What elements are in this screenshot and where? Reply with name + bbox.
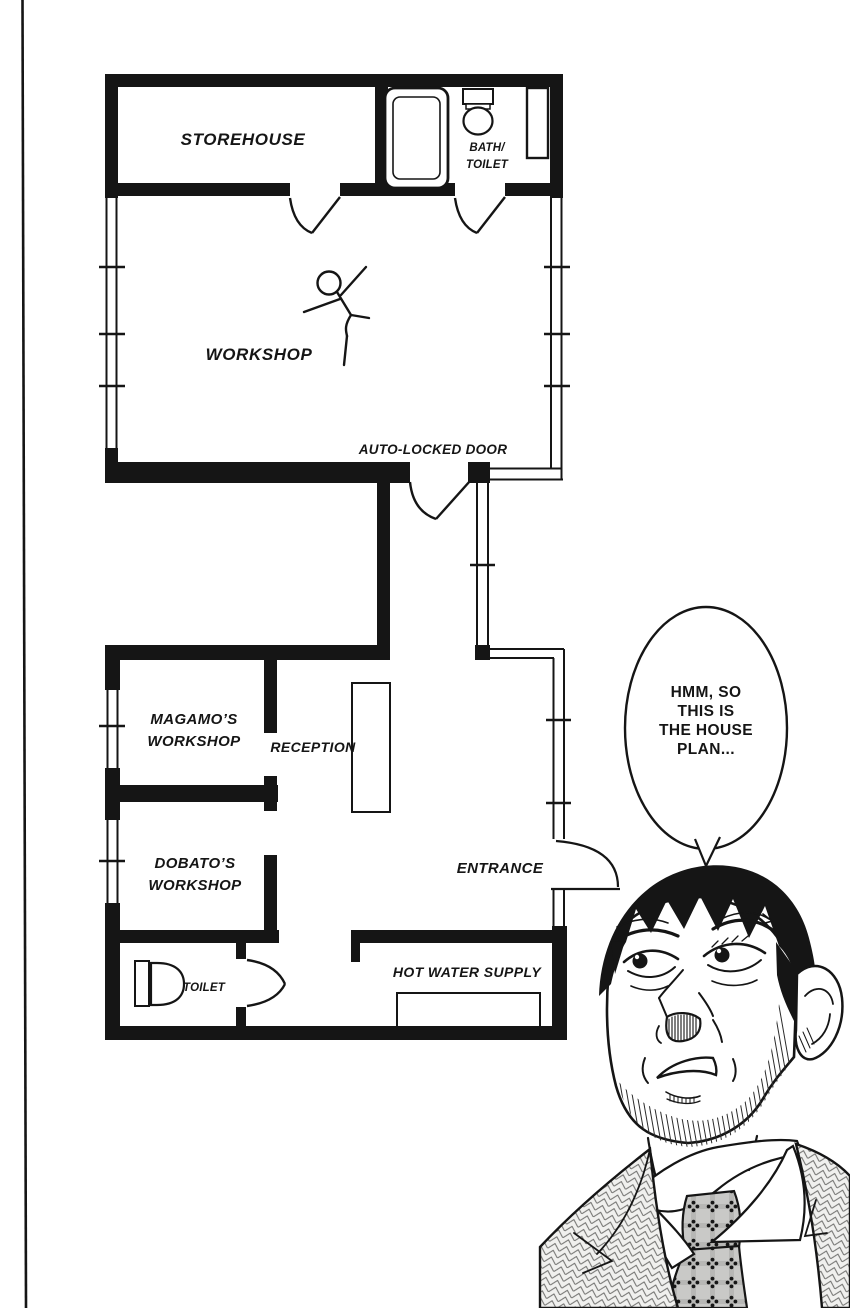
svg-text:THE HOUSE: THE HOUSE bbox=[659, 722, 753, 739]
lower-building: MAGAMO’S WORKSHOP RECEPTION DOBATO’S WOR… bbox=[99, 645, 620, 1040]
svg-text:THIS IS: THIS IS bbox=[677, 703, 734, 720]
manga-page: STOREHOUSE BATH/ TOILET WORKSHOP AUTO-LO… bbox=[0, 0, 850, 1308]
upper-building: STOREHOUSE BATH/ TOILET WORKSHOP AUTO-LO… bbox=[99, 74, 570, 483]
entrance-door-swing-icon bbox=[551, 841, 620, 889]
door-swing-icons bbox=[290, 197, 505, 233]
label-entrance: ENTRANCE bbox=[457, 860, 544, 877]
label-storehouse: STOREHOUSE bbox=[181, 130, 306, 149]
toilet-icon-upper bbox=[463, 89, 493, 135]
ear-icon bbox=[796, 966, 843, 1059]
floor-plan: STOREHOUSE BATH/ TOILET WORKSHOP AUTO-LO… bbox=[99, 74, 620, 1040]
auto-locked-door-swing-icon bbox=[410, 481, 470, 519]
label-bath-toilet-line1: BATH/ bbox=[469, 142, 506, 154]
character bbox=[540, 865, 850, 1308]
bathtub-icon bbox=[385, 88, 448, 188]
upper-walls bbox=[105, 74, 563, 483]
toilet-door-swing-icon bbox=[247, 960, 285, 1006]
label-bath-toilet-line2: TOILET bbox=[466, 159, 509, 171]
label-workshop: WORKSHOP bbox=[206, 345, 313, 364]
toilet-icon-lower bbox=[135, 961, 184, 1006]
label-magamo-workshop-line1: MAGAMO’S bbox=[150, 711, 237, 728]
window-ticks bbox=[99, 267, 570, 386]
label-auto-locked-door: AUTO-LOCKED DOOR bbox=[358, 442, 508, 457]
window-walls bbox=[107, 196, 564, 480]
svg-text:HMM, SO: HMM, SO bbox=[671, 684, 742, 701]
label-reception: RECEPTION bbox=[270, 739, 356, 755]
label-toilet: TOILET bbox=[183, 982, 226, 994]
corridor bbox=[377, 468, 495, 660]
label-hot-water-supply: HOT WATER SUPPLY bbox=[393, 964, 542, 980]
label-dobato-workshop-line1: DOBATO’S bbox=[155, 855, 236, 872]
svg-text:PLAN...: PLAN... bbox=[677, 741, 735, 758]
reception-counter bbox=[352, 683, 390, 812]
label-dobato-workshop-line2: WORKSHOP bbox=[148, 877, 242, 894]
page-border-line bbox=[23, 0, 27, 1308]
speech-bubble: HMM, SO THIS IS THE HOUSE PLAN... bbox=[625, 607, 787, 867]
person-stick-figure-icon bbox=[304, 267, 369, 365]
shelf-icon bbox=[527, 88, 548, 158]
label-magamo-workshop-line2: WORKSHOP bbox=[147, 733, 241, 750]
hot-water-counter bbox=[397, 993, 540, 1027]
